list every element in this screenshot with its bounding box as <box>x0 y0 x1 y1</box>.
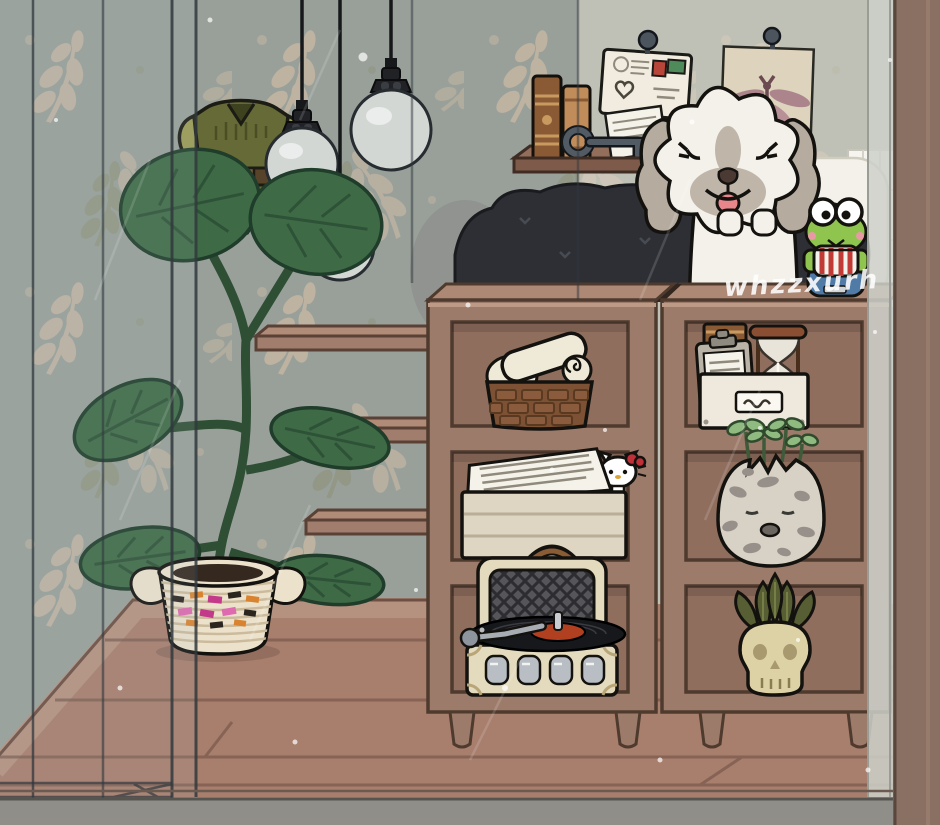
record-player[interactable] <box>461 550 625 695</box>
pin-icon <box>764 28 780 44</box>
book-emblem-icon <box>542 115 552 125</box>
spindle <box>554 612 562 630</box>
game-scene: whzzxurh <box>0 0 940 825</box>
red-stamp-icon <box>652 61 666 77</box>
green-stamp-icon <box>668 60 686 74</box>
right-wall-panel <box>868 0 940 825</box>
scene-svg: whzzxurh <box>0 0 940 825</box>
dog-paw <box>718 210 742 235</box>
paper-tray[interactable] <box>462 448 646 558</box>
dog-nose-icon <box>719 169 738 185</box>
dog-paw <box>752 210 776 235</box>
